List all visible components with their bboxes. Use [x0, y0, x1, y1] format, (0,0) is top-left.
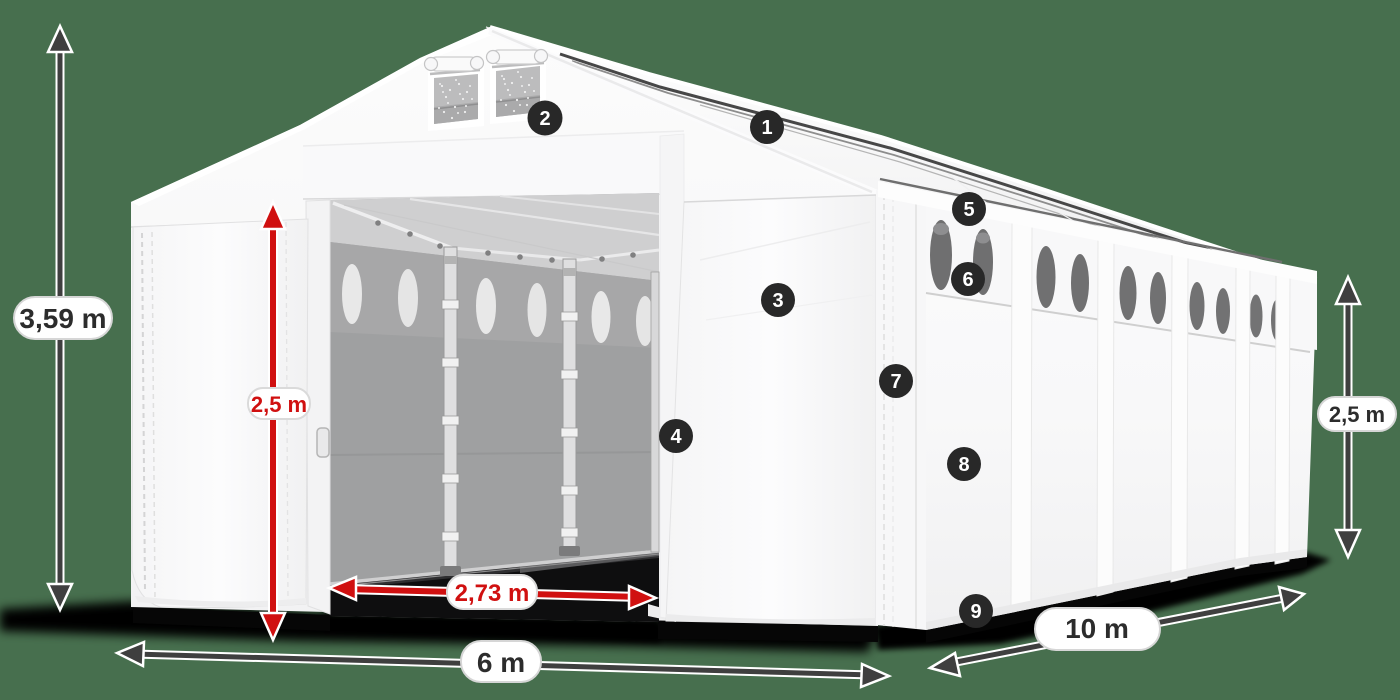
- svg-text:5: 5: [963, 199, 974, 221]
- svg-text:10 m: 10 m: [1065, 613, 1129, 644]
- svg-text:6 m: 6 m: [477, 647, 525, 678]
- svg-text:2,5 m: 2,5 m: [1329, 402, 1385, 427]
- svg-text:2: 2: [539, 108, 550, 130]
- svg-text:3: 3: [772, 290, 783, 312]
- svg-text:9: 9: [970, 601, 981, 623]
- svg-text:2,5 m: 2,5 m: [251, 392, 307, 417]
- svg-text:7: 7: [890, 371, 901, 393]
- svg-text:2,73 m: 2,73 m: [455, 580, 530, 607]
- svg-text:3,59 m: 3,59 m: [19, 303, 106, 334]
- svg-text:4: 4: [670, 426, 682, 448]
- svg-text:1: 1: [761, 117, 772, 139]
- svg-text:8: 8: [958, 454, 969, 476]
- svg-text:6: 6: [962, 269, 973, 291]
